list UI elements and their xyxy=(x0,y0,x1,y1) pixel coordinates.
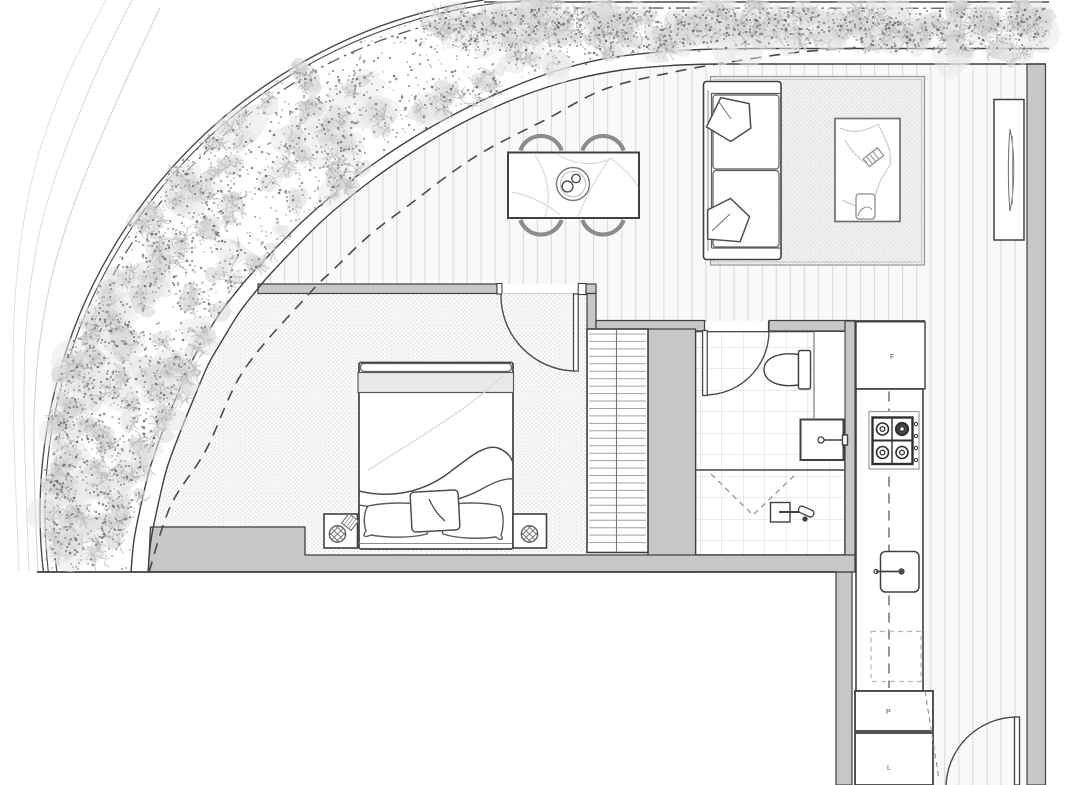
svg-text:F: F xyxy=(890,354,894,361)
svg-text:L: L xyxy=(887,765,891,772)
svg-text:P: P xyxy=(886,709,891,716)
